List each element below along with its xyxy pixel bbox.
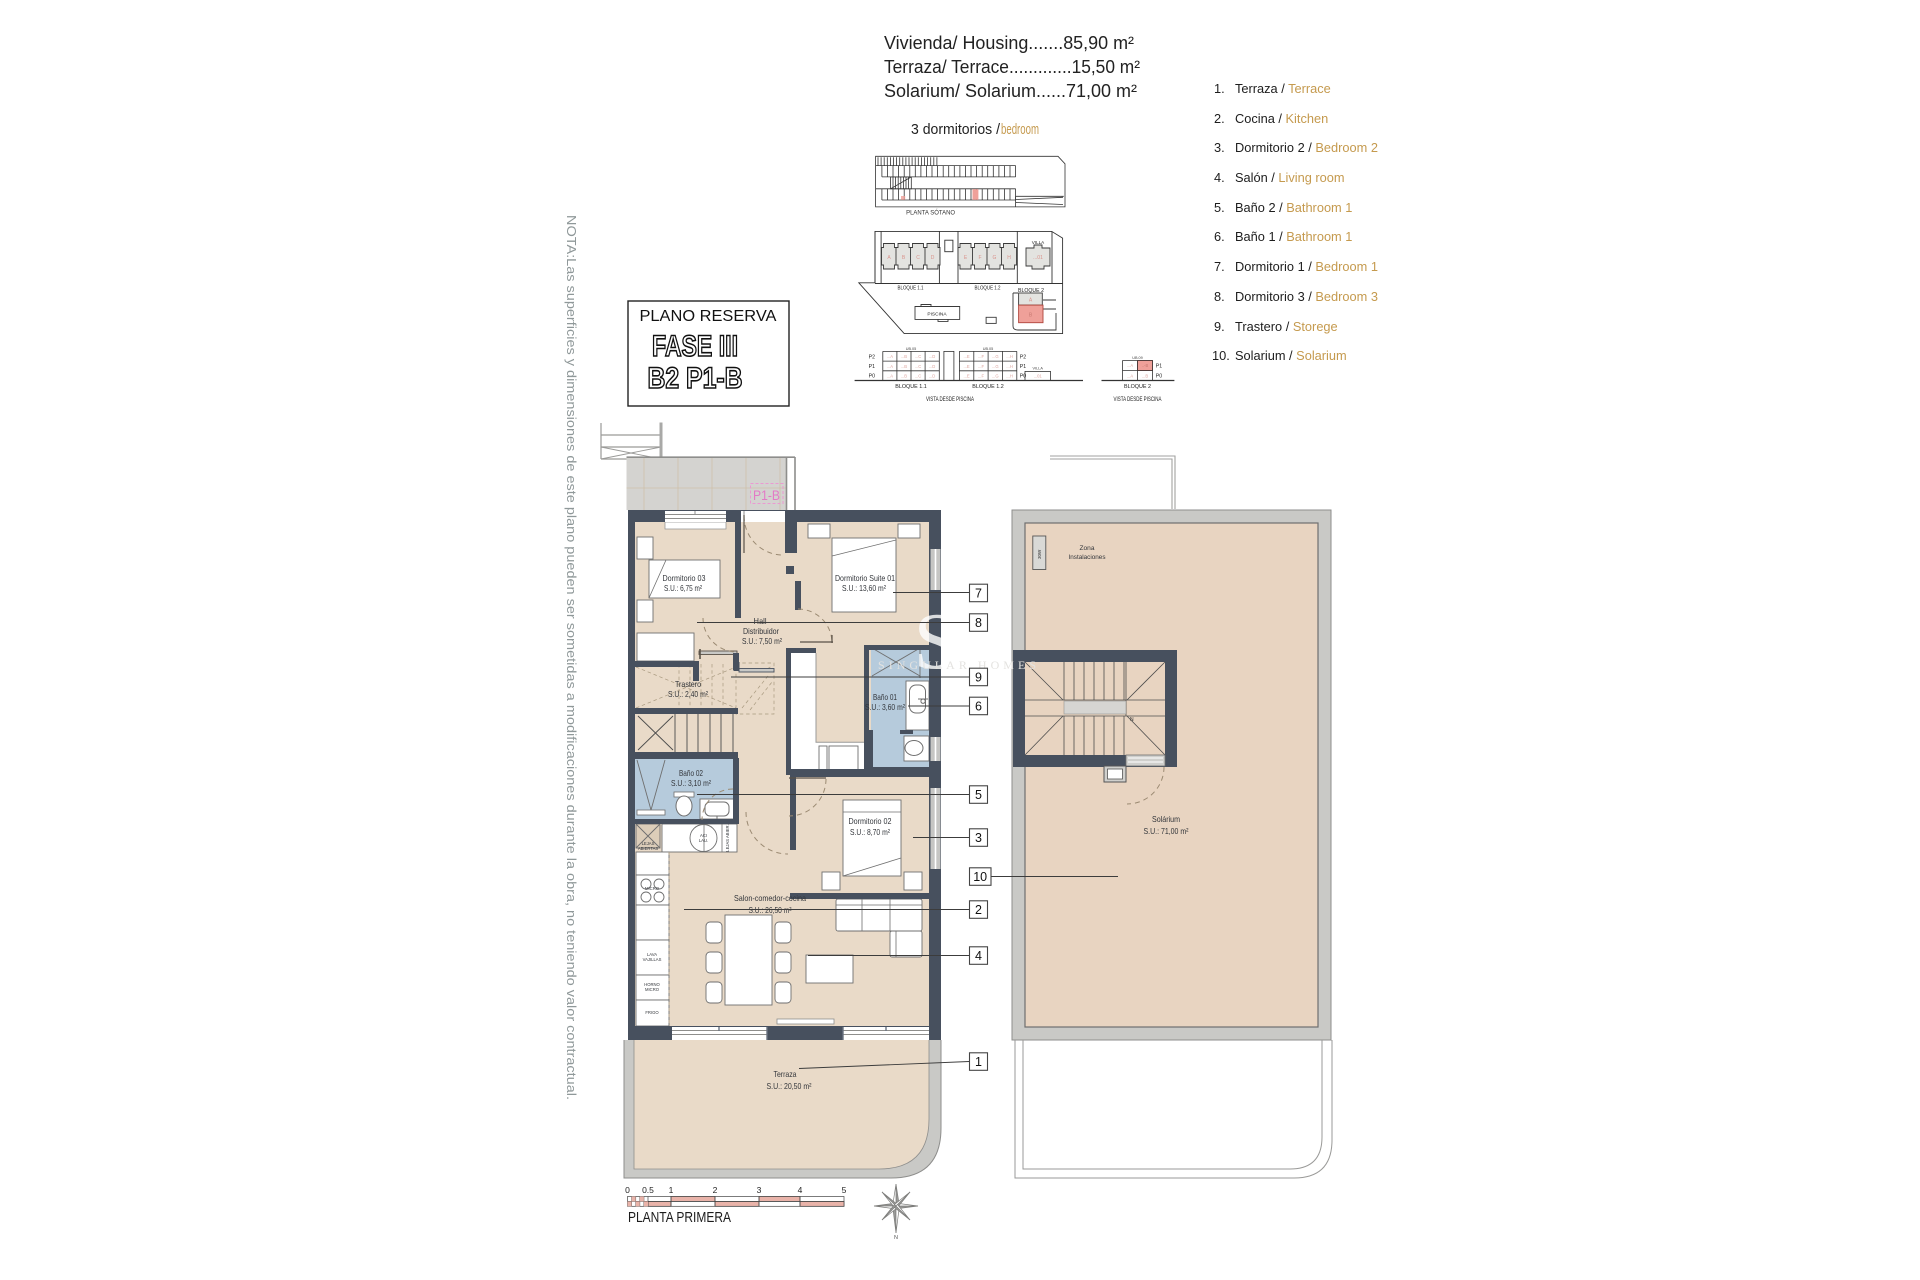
svg-text:9: 9 xyxy=(975,670,982,684)
svg-text:...D: ...D xyxy=(929,364,936,369)
svg-text:Terraza / Terrace: Terraza / Terrace xyxy=(1235,81,1331,96)
svg-text:...A: ...A xyxy=(887,364,893,369)
svg-text:S.U.: 20,50 m²: S.U.: 20,50 m² xyxy=(767,1081,812,1091)
svg-text:...E: ...E xyxy=(963,374,969,379)
svg-text:5.: 5. xyxy=(1214,200,1225,215)
svg-text:2: 2 xyxy=(975,903,982,917)
svg-text:P1: P1 xyxy=(869,364,875,370)
svg-text:Terraza/ Terrace.............1: Terraza/ Terrace.............15,50 m² xyxy=(884,57,1140,77)
svg-text:S.U.: 2,40 m²: S.U.: 2,40 m² xyxy=(668,689,708,699)
svg-text:...F: ...F xyxy=(978,354,984,359)
svg-text:P1-B: P1-B xyxy=(753,488,780,503)
svg-text:Baño 01: Baño 01 xyxy=(873,692,897,702)
svg-text:6.: 6. xyxy=(1214,229,1225,244)
svg-text:...01: ...01 xyxy=(1033,255,1043,261)
svg-text:Vivienda/ Housing.......85,90: Vivienda/ Housing.......85,90 m² xyxy=(884,33,1134,53)
svg-text:LAU.: LAU. xyxy=(699,838,708,843)
svg-text:Instalaciones: Instalaciones xyxy=(1069,554,1107,561)
svg-text:VISTA DESDE PISCINA: VISTA DESDE PISCINA xyxy=(926,397,974,403)
svg-text:3.: 3. xyxy=(1214,140,1225,155)
svg-text:FASE III: FASE III xyxy=(652,330,738,363)
svg-text:0.5: 0.5 xyxy=(642,1185,654,1195)
svg-text:bedroom: bedroom xyxy=(1001,122,1039,138)
svg-text:SINGULAR HOMES: SINGULAR HOMES xyxy=(878,658,1042,672)
svg-text:...F: ...F xyxy=(978,364,984,369)
svg-text:BLOQUE 2: BLOQUE 2 xyxy=(1124,384,1151,390)
svg-text:S.U.: 7,50 m²: S.U.: 7,50 m² xyxy=(742,636,782,646)
svg-text:7.: 7. xyxy=(1214,259,1225,274)
svg-text:3: 3 xyxy=(975,831,982,845)
svg-text:10.: 10. xyxy=(1212,348,1230,363)
svg-text:S.U.: 8,70 m²: S.U.: 8,70 m² xyxy=(850,827,890,837)
svg-text:P2: P2 xyxy=(1020,354,1026,360)
svg-text:...D: ...D xyxy=(929,354,936,359)
svg-text:P0: P0 xyxy=(1020,374,1026,380)
svg-text:BLOQUE 1.2: BLOQUE 1.2 xyxy=(972,384,1003,390)
svg-text:BLOQUE 1.2: BLOQUE 1.2 xyxy=(975,286,1001,292)
svg-text:Dormitorio 2 / Bedroom 2: Dormitorio 2 / Bedroom 2 xyxy=(1235,140,1378,155)
svg-text:...B: ...B xyxy=(901,374,907,379)
svg-text:0: 0 xyxy=(625,1185,630,1195)
svg-text:...F: ...F xyxy=(978,374,984,379)
svg-text:S.U.: 6,75 m²: S.U.: 6,75 m² xyxy=(664,583,702,593)
svg-text:8.: 8. xyxy=(1214,289,1225,304)
svg-text:PISCINA: PISCINA xyxy=(927,312,947,318)
svg-text:...B: ...B xyxy=(901,354,907,359)
svg-text:VISTA DESDE PISCINA: VISTA DESDE PISCINA xyxy=(1114,397,1162,403)
svg-text:Dormitorio 3 / Bedroom 3: Dormitorio 3 / Bedroom 3 xyxy=(1235,289,1378,304)
svg-text:ABIERTAS: ABIERTAS xyxy=(638,846,659,851)
svg-text:H: H xyxy=(1007,255,1011,261)
svg-text:..-B: ..-B xyxy=(1142,363,1149,368)
svg-text:S.U.: 71,00 m²: S.U.: 71,00 m² xyxy=(1144,826,1189,836)
svg-text:N: N xyxy=(894,1235,898,1241)
svg-text:Zona: Zona xyxy=(1080,545,1095,552)
svg-text:S.U.: 13,60 m²: S.U.: 13,60 m² xyxy=(842,583,886,593)
svg-text:...H: ...H xyxy=(1006,374,1013,379)
svg-text:4.: 4. xyxy=(1214,170,1225,185)
svg-text:B2 P1-B: B2 P1-B xyxy=(648,362,743,395)
svg-text:30W: 30W xyxy=(1037,549,1042,559)
svg-text:Cocina / Kitchen: Cocina / Kitchen xyxy=(1235,111,1328,126)
svg-text:Dormitorio 1 / Bedroom 1: Dormitorio 1 / Bedroom 1 xyxy=(1235,259,1378,274)
svg-text:Salon-comedor-cocina: Salon-comedor-cocina xyxy=(734,893,806,903)
svg-text:P1: P1 xyxy=(1156,363,1162,369)
svg-text:Baño 1 / Bathroom 1: Baño 1 / Bathroom 1 xyxy=(1235,229,1352,244)
svg-text:5: 5 xyxy=(842,1185,847,1195)
svg-text:10: 10 xyxy=(973,870,987,884)
svg-text:PLANTA PRIMERA: PLANTA PRIMERA xyxy=(628,1209,731,1226)
svg-text:...G: ...G xyxy=(992,374,999,379)
svg-text:...H: ...H xyxy=(1006,354,1013,359)
svg-text:Dormitorio 03: Dormitorio 03 xyxy=(663,573,706,583)
svg-text:3: 3 xyxy=(757,1185,762,1195)
svg-text:...B: ...B xyxy=(901,364,907,369)
svg-text:BLOQUE 2: BLOQUE 2 xyxy=(1018,288,1044,294)
svg-text:S.U.: 3,10 m²: S.U.: 3,10 m² xyxy=(671,778,711,788)
svg-text:P0: P0 xyxy=(869,374,875,380)
svg-text:Trastero / Storege: Trastero / Storege xyxy=(1235,319,1338,334)
svg-text:3 dormitorios /: 3 dormitorios / xyxy=(911,122,1001,138)
svg-text:P0: P0 xyxy=(1156,373,1162,379)
svg-text:...B: ...B xyxy=(1142,373,1148,378)
svg-text:Baño 2 / Bathroom 1: Baño 2 / Bathroom 1 xyxy=(1235,200,1352,215)
svg-text:Solárium: Solárium xyxy=(1152,814,1180,824)
svg-text:VAJILLAS: VAJILLAS xyxy=(643,957,662,962)
svg-text:...A: ...A xyxy=(887,354,893,359)
svg-text:LEJAS ABIER.: LEJAS ABIER. xyxy=(725,824,730,851)
svg-text:Baño 02: Baño 02 xyxy=(679,768,703,778)
svg-text:...G: ...G xyxy=(992,354,999,359)
svg-text:C: C xyxy=(916,255,920,261)
svg-text:...E: ...E xyxy=(963,364,969,369)
svg-text:S.U.: 3,60 m²: S.U.: 3,60 m² xyxy=(865,702,905,712)
svg-text:1: 1 xyxy=(975,1055,982,1069)
svg-text:NOTA:Las superficies y dimensi: NOTA:Las superficies y dimensiones de es… xyxy=(564,215,578,1100)
svg-text:...E: ...E xyxy=(963,354,969,359)
svg-text:UB.05: UB.05 xyxy=(906,347,917,351)
svg-text:VILLA: VILLA xyxy=(1033,367,1044,371)
svg-text:BLOQUE 1.1: BLOQUE 1.1 xyxy=(898,286,924,292)
svg-text:1.: 1. xyxy=(1214,81,1225,96)
svg-text:UB.05: UB.05 xyxy=(983,347,994,351)
svg-text:Trastero: Trastero xyxy=(675,679,701,689)
svg-text:...C: ...C xyxy=(915,374,922,379)
svg-text:6: 6 xyxy=(975,699,982,713)
svg-text:S.U.: 26,50 m²: S.U.: 26,50 m² xyxy=(749,905,792,915)
svg-text:...01: ...01 xyxy=(1034,374,1043,379)
svg-text:...D: ...D xyxy=(929,374,936,379)
svg-text:N: N xyxy=(1130,717,1134,723)
svg-text:PLANTA SÓTANO: PLANTA SÓTANO xyxy=(906,208,955,217)
svg-text:...A: ...A xyxy=(1127,373,1133,378)
svg-text:7: 7 xyxy=(975,586,982,600)
svg-text:5: 5 xyxy=(975,788,982,802)
svg-text:4: 4 xyxy=(975,949,982,963)
svg-text:...H: ...H xyxy=(1006,364,1013,369)
svg-text:UB.09: UB.09 xyxy=(1132,356,1143,360)
svg-text:4: 4 xyxy=(798,1185,803,1195)
svg-text:P1: P1 xyxy=(1020,364,1026,370)
svg-text:D: D xyxy=(931,255,935,261)
svg-text:...C: ...C xyxy=(915,364,922,369)
svg-text:9.: 9. xyxy=(1214,319,1225,334)
svg-text:PLANO RESERVA: PLANO RESERVA xyxy=(640,308,777,325)
svg-text:Salón / Living room: Salón / Living room xyxy=(1235,170,1345,185)
svg-text:Solarium / Solarium: Solarium / Solarium xyxy=(1235,348,1347,363)
svg-text:8: 8 xyxy=(975,616,982,630)
svg-text:S: S xyxy=(914,598,959,686)
svg-text:2: 2 xyxy=(713,1185,718,1195)
svg-text:Dormitorio 02: Dormitorio 02 xyxy=(849,816,892,826)
svg-text:G: G xyxy=(993,255,997,261)
svg-text:Dormitorio Suite 01: Dormitorio Suite 01 xyxy=(835,573,895,583)
svg-text:1: 1 xyxy=(669,1185,674,1195)
svg-text:Terraza: Terraza xyxy=(774,1069,797,1079)
svg-text:...A: ...A xyxy=(1127,363,1133,368)
svg-text:...G: ...G xyxy=(992,364,999,369)
svg-text:F: F xyxy=(978,255,981,261)
svg-text:P2: P2 xyxy=(869,354,875,360)
svg-text:2.: 2. xyxy=(1214,111,1225,126)
svg-text:MICRO: MICRO xyxy=(645,886,660,891)
svg-text:...A: ...A xyxy=(887,374,893,379)
svg-text:BLOQUE 1.1: BLOQUE 1.1 xyxy=(895,384,926,390)
svg-text:VILLA: VILLA xyxy=(1032,240,1045,245)
svg-text:MICRO: MICRO xyxy=(645,987,660,992)
svg-text:Distribuidor: Distribuidor xyxy=(743,626,779,636)
svg-text:...C: ...C xyxy=(915,354,922,359)
svg-text:Hall: Hall xyxy=(754,616,767,626)
svg-text:FRIGO: FRIGO xyxy=(645,1010,659,1015)
svg-text:Solarium/ Solarium......71,00: Solarium/ Solarium......71,00 m² xyxy=(884,81,1137,101)
